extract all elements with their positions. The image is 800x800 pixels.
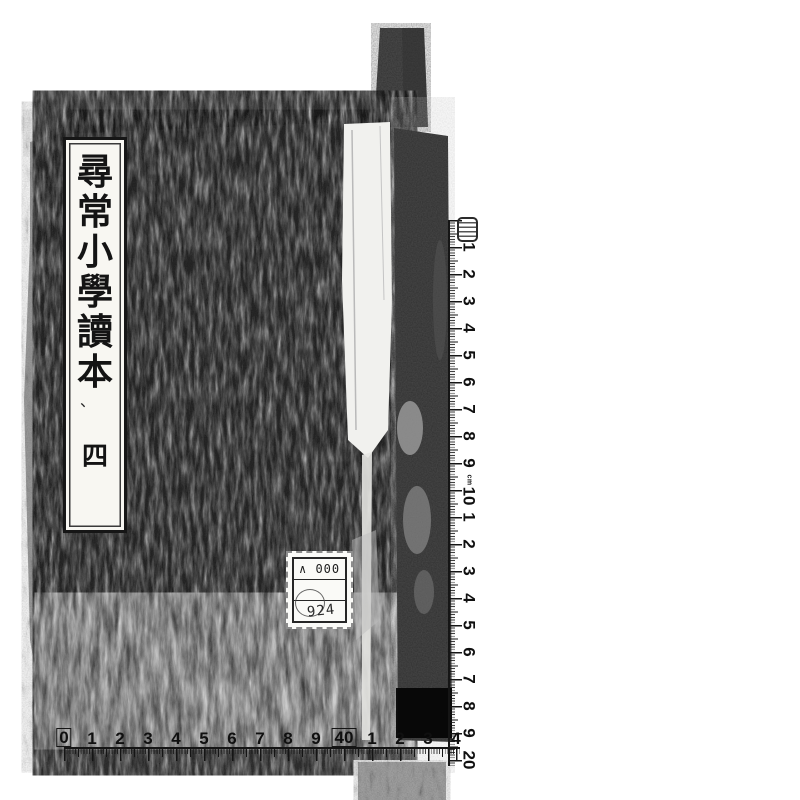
hruler-number: 7 [255,726,264,747]
horizontal-ruler-ticks [64,747,460,763]
vruler-number: 7 [461,404,478,413]
vruler-number: 8 [461,431,478,440]
hruler-number: 5 [199,726,208,747]
title-char: 尋 [77,152,113,192]
number-label: 2 [395,730,404,747]
vertical-ruler: 123456789cm1012345678920 [444,214,482,784]
vruler-number: 1 [461,512,478,521]
vruler-number: 1 [461,242,478,251]
cloth-strap-bottom [358,762,446,800]
scanned-book-cover-page: 尋 常 小 學 讀 本 、 四 ∧ 000 924 123456789cm101… [0,0,800,800]
hruler-number: 3 [143,726,152,747]
hruler-number: 4 [171,726,180,747]
number-label: 3 [423,730,432,747]
hruler-number: 1 [367,726,376,747]
hruler-number: 2 [395,726,404,747]
cloth-strap-top [374,28,428,127]
vruler-number: 3 [461,566,478,575]
volume-number: 四 [82,444,108,470]
number-label: 4 [171,730,180,747]
vruler-number: 9 [461,458,478,467]
vruler-number: 8 [461,701,478,710]
number-label: 40 [332,728,357,747]
vruler-number: 4 [461,323,478,332]
title-char: 本 [77,352,113,392]
vruler-number: 6 [461,377,478,386]
sticker-row-3: 924 [294,601,345,621]
number-label: 0 [56,728,71,747]
vruler-number: 2 [461,539,478,548]
vruler-number: cm10 [461,474,478,505]
hruler-number: 1 [87,726,96,747]
title-char: 學 [77,272,113,312]
vruler-number: 7 [461,674,478,683]
sticker-code: ∧ 000 [299,562,340,576]
hruler-number: 9 [311,726,320,747]
vruler-number: 5 [461,350,478,359]
number-label: 3 [143,730,152,747]
vruler-number: 2 [461,269,478,278]
hruler-number: 8 [283,726,292,747]
sticker-frame: ∧ 000 924 [292,557,347,623]
vruler-number: 3 [461,296,478,305]
title-separator-mark: 、 [66,394,95,410]
vruler-number: 9 [461,728,478,737]
vruler-number: 20 [461,751,478,770]
ruler-end-arrow-icon: ← [448,730,462,747]
title-char: 常 [77,192,113,232]
sticker-number: 924 [306,602,336,621]
vruler-number: 6 [461,647,478,656]
hruler-number: 3 [423,726,432,747]
vruler-number: 4 [461,593,478,602]
number-label: 1 [367,730,376,747]
title-char: 讀 [77,312,113,352]
horizontal-ruler: cm01234567890cm401234 ← [54,726,462,764]
title-slip-label: 尋 常 小 學 讀 本 、 四 [63,137,127,533]
number-label: 9 [311,730,320,747]
title-char: 小 [77,232,113,272]
accession-sticker: ∧ 000 924 [286,551,353,629]
number-label: 1 [87,730,96,747]
ruler-maker-stamp-icon [457,217,478,242]
hruler-number: 6 [227,726,236,747]
sticker-row-1: ∧ 000 [294,559,345,580]
hruler-number: 2 [115,726,124,747]
number-label: 7 [255,730,264,747]
number-label: 6 [227,730,236,747]
number-label: 8 [283,730,292,747]
number-label: 2 [115,730,124,747]
vruler-number: 5 [461,620,478,629]
number-label: 5 [199,730,208,747]
unit-label: cm [466,474,473,485]
hruler-number: cm0 [56,726,71,747]
hruler-number: 0cm40 [332,726,357,747]
